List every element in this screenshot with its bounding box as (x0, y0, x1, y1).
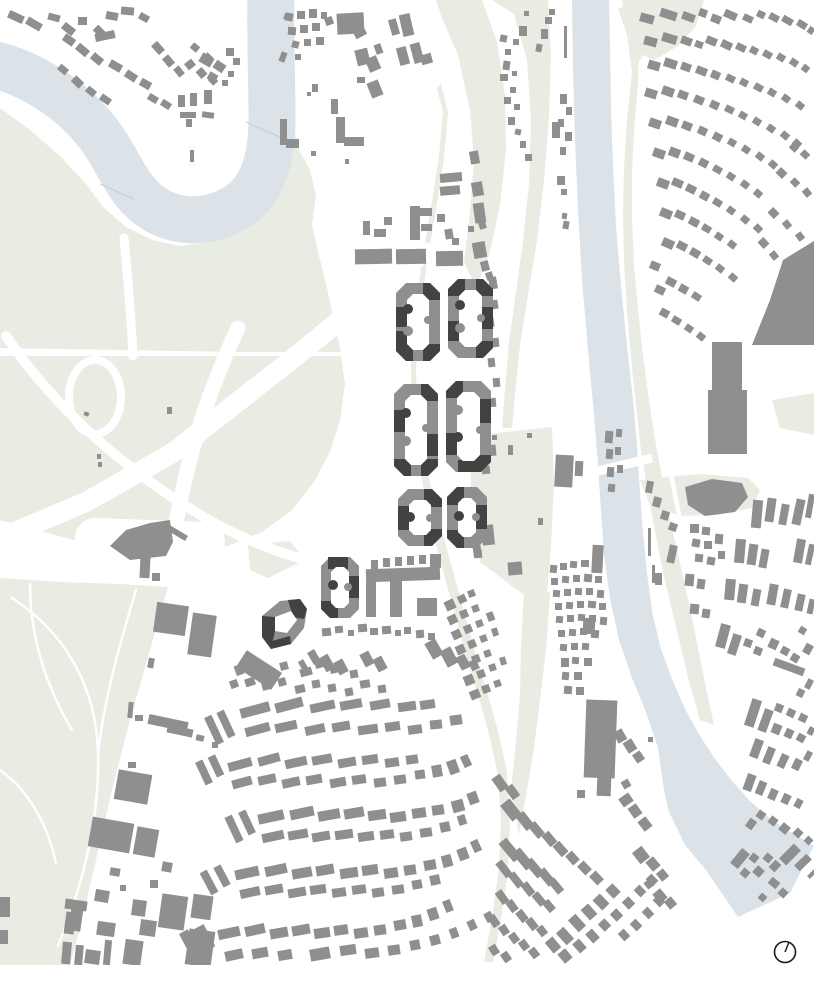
site-plan-map (0, 0, 814, 981)
map-canvas (0, 0, 814, 981)
map-margin (0, 965, 814, 981)
